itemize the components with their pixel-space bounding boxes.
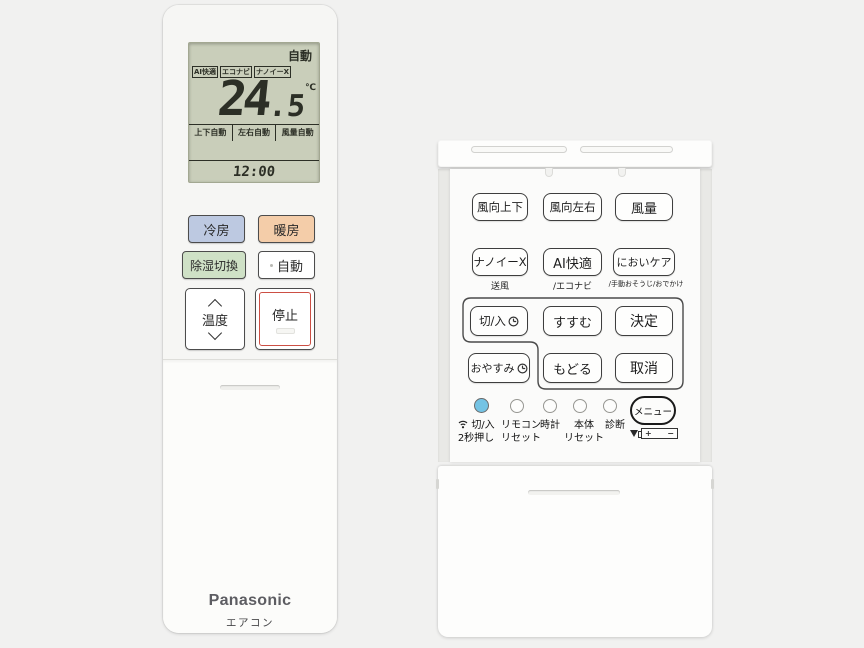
sleep-timer-label: おやすみ bbox=[471, 360, 515, 376]
wireless-power-button[interactable] bbox=[474, 398, 489, 413]
fan-speed-label: 風量 bbox=[631, 198, 657, 217]
dehumidify-button[interactable]: 除湿切換 bbox=[182, 251, 246, 279]
heat-button-label: 暖房 bbox=[273, 220, 299, 239]
timer-onoff-button[interactable]: 切/入 bbox=[470, 306, 528, 336]
stop-button-label: 停止 bbox=[272, 305, 298, 324]
timer-onoff-label: 切/入 bbox=[479, 313, 506, 329]
airflow-vertical-button[interactable]: 風向上下 bbox=[472, 193, 528, 221]
remote-reset-button[interactable] bbox=[510, 399, 524, 413]
remote-front: 自動 AI快適 エコナビ ナノイーX 24 .5 ℃ 上下自動 左右自動 風量自… bbox=[163, 5, 337, 633]
hinge-notch-left bbox=[545, 168, 553, 177]
odor-care-label: においケア bbox=[617, 254, 672, 270]
enter-button[interactable]: 決定 bbox=[615, 306, 673, 336]
menu-label: メニュー bbox=[634, 404, 672, 418]
indicator-dot-icon bbox=[270, 264, 273, 267]
lcd-temperature-integer: 24 bbox=[216, 77, 270, 121]
enter-label: 決定 bbox=[630, 311, 658, 331]
remote-back: 風向上下 風向左右 風量 ナノイーX AI快適 においケア 送風 / bbox=[438, 140, 712, 637]
lcd-badge-ai: AI快適 bbox=[192, 66, 218, 78]
lcd-airflow-status-row: 上下自動 左右自動 風量自動 bbox=[189, 124, 319, 141]
auto-button-label: 自動 bbox=[277, 256, 303, 275]
nanoe-x-label: ナノイーX bbox=[473, 254, 526, 270]
battery-minus-label: − bbox=[667, 429, 674, 438]
remote-front-upper-section: 自動 AI快適 エコナビ ナノイーX 24 .5 ℃ 上下自動 左右自動 風量自… bbox=[163, 5, 337, 360]
timer-forward-button[interactable]: すすむ bbox=[543, 306, 602, 336]
clock-set-button[interactable] bbox=[543, 399, 557, 413]
cover-grip-slit bbox=[220, 385, 280, 390]
airflow-horizontal-label: 風向左右 bbox=[550, 199, 596, 215]
stop-button-pill bbox=[276, 328, 295, 334]
timer-clock-icon bbox=[508, 316, 519, 327]
lcd-clock: 12:00 bbox=[188, 164, 319, 180]
ai-comfort-label: AI快適 bbox=[553, 253, 592, 272]
nanoe-x-button[interactable]: ナノイーX bbox=[472, 248, 528, 276]
lcd-display: 自動 AI快適 エコナビ ナノイーX 24 .5 ℃ 上下自動 左右自動 風量自… bbox=[188, 42, 320, 183]
lcd-status-fan: 風量自動 bbox=[275, 125, 319, 141]
unit-reset-subcaption: リセット bbox=[563, 429, 605, 444]
battery-plus-label: + bbox=[645, 429, 652, 438]
cancel-button[interactable]: 取消 bbox=[615, 353, 673, 383]
airflow-vertical-label: 風向上下 bbox=[477, 199, 523, 215]
sub-label-cleaning-outing: /手動おそうじ/おでかけ bbox=[600, 279, 692, 289]
remote-back-top-edge bbox=[438, 140, 712, 167]
cancel-label: 取消 bbox=[630, 358, 658, 378]
cover-pin-left bbox=[436, 479, 439, 489]
remote-front-flip-cover[interactable]: Panasonic エアコン bbox=[163, 360, 337, 633]
lcd-time-divider bbox=[189, 160, 319, 161]
auto-button[interactable]: 自動 bbox=[258, 251, 315, 279]
brand-logo: Panasonic bbox=[163, 592, 337, 610]
stop-button[interactable]: 停止 bbox=[255, 288, 315, 350]
wireless-power-subcaption: 2秒押し bbox=[452, 429, 500, 444]
airflow-horizontal-button[interactable]: 風向左右 bbox=[543, 193, 602, 221]
battery-indicator: + − bbox=[630, 428, 690, 439]
timer-forward-label: すすむ bbox=[553, 312, 592, 331]
lcd-temperature: 24 .5 ℃ bbox=[218, 71, 314, 121]
remote-back-recess: 風向上下 風向左右 風量 ナノイーX AI快適 においケア 送風 / bbox=[438, 169, 712, 462]
sleep-timer-button[interactable]: おやすみ bbox=[468, 353, 530, 383]
diagnosis-button[interactable] bbox=[603, 399, 617, 413]
dehumidify-button-label: 除湿切換 bbox=[190, 257, 238, 274]
sub-label-fan-only: 送風 bbox=[472, 279, 528, 292]
product-photo-canvas: 自動 AI快適 エコナビ ナノイーX 24 .5 ℃ 上下自動 左右自動 風量自… bbox=[0, 0, 864, 648]
sub-label-econavi: /エコナビ bbox=[543, 279, 602, 292]
wifi-icon bbox=[457, 418, 469, 429]
hinge-notch-right bbox=[618, 168, 626, 177]
remote-reset-subcaption: リセット bbox=[500, 429, 542, 444]
heat-button[interactable]: 暖房 bbox=[258, 215, 315, 243]
top-slot-left bbox=[471, 146, 567, 153]
menu-button[interactable]: メニュー bbox=[630, 396, 676, 425]
cover-grip-slit bbox=[528, 490, 620, 495]
battery-arrow-icon bbox=[630, 430, 638, 437]
lcd-temperature-decimal: .5 bbox=[267, 93, 306, 121]
lcd-status-vertical: 上下自動 bbox=[189, 125, 232, 141]
product-type-label: エアコン bbox=[163, 615, 337, 630]
timer-back-label: もどる bbox=[553, 359, 592, 378]
timer-back-button[interactable]: もどる bbox=[543, 353, 602, 383]
cool-button-label: 冷房 bbox=[203, 220, 229, 239]
remote-back-slide-cover[interactable] bbox=[438, 466, 712, 637]
fan-speed-button[interactable]: 風量 bbox=[615, 193, 673, 221]
lcd-temperature-unit: ℃ bbox=[305, 83, 316, 93]
cover-pin-right bbox=[711, 479, 714, 489]
inner-button-panel: 風向上下 風向左右 風量 ナノイーX AI快適 においケア 送風 / bbox=[450, 169, 700, 462]
unit-reset-button[interactable] bbox=[573, 399, 587, 413]
odor-care-button[interactable]: においケア bbox=[613, 248, 675, 276]
top-slot-right bbox=[580, 146, 673, 153]
temperature-button[interactable]: 温度 bbox=[185, 288, 245, 350]
ai-comfort-button[interactable]: AI快適 bbox=[543, 248, 602, 276]
timer-clock-icon bbox=[517, 363, 528, 374]
lcd-mode-label: 自動 bbox=[288, 47, 312, 64]
lcd-status-horizontal: 左右自動 bbox=[232, 125, 276, 141]
battery-icon: + − bbox=[641, 428, 678, 439]
cool-button[interactable]: 冷房 bbox=[188, 215, 245, 243]
